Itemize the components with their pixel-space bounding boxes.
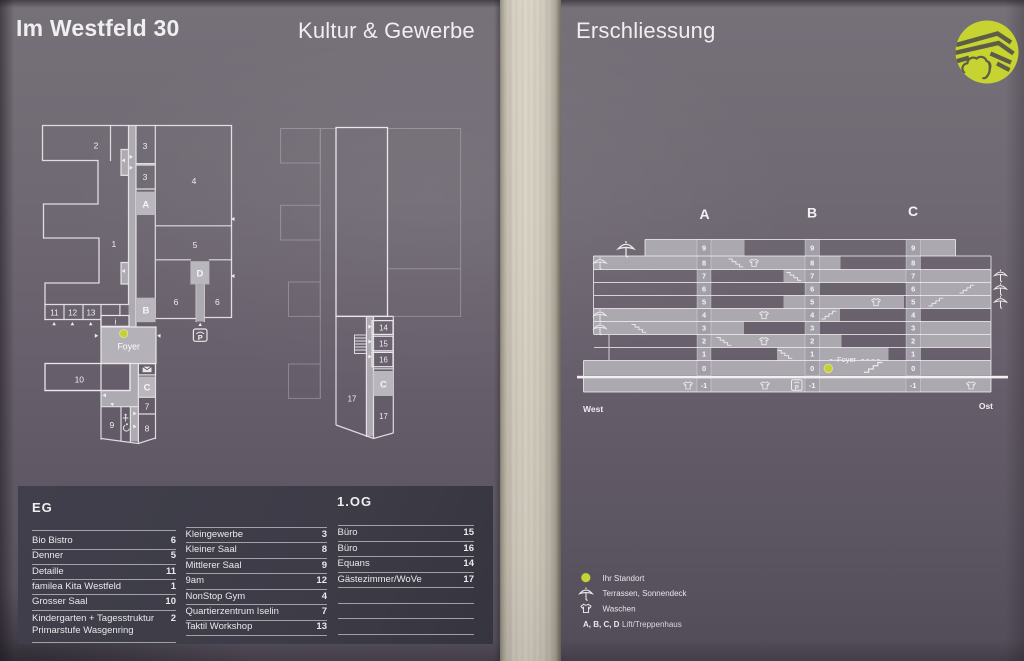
svg-text:9: 9 (911, 243, 915, 252)
svg-text:17: 17 (348, 395, 357, 404)
svg-text:4: 4 (192, 176, 197, 186)
svg-text:Foyer: Foyer (117, 342, 140, 352)
svg-text:16: 16 (379, 356, 388, 365)
svg-text:Ost: Ost (979, 401, 993, 411)
svg-text:1: 1 (702, 350, 706, 359)
svg-text:5: 5 (193, 240, 198, 250)
svg-text:Foyer: Foyer (837, 355, 857, 364)
svg-text:A, B, C, D: A, B, C, D (583, 620, 620, 629)
svg-text:9: 9 (110, 420, 115, 430)
svg-text:14: 14 (379, 324, 388, 333)
svg-text:1: 1 (911, 350, 915, 359)
svg-text:2: 2 (810, 337, 814, 346)
svg-text:Ihr Standort: Ihr Standort (603, 574, 646, 583)
svg-text:-1: -1 (701, 381, 708, 390)
svg-text:2: 2 (94, 141, 99, 151)
svg-text:B: B (807, 205, 817, 221)
svg-text:17: 17 (379, 412, 388, 421)
svg-text:6: 6 (215, 297, 220, 307)
svg-text:Waschen: Waschen (603, 605, 636, 614)
svg-text:C: C (144, 383, 151, 394)
svg-text:7: 7 (145, 402, 150, 412)
svg-text:3: 3 (143, 141, 148, 151)
svg-text:3: 3 (911, 324, 915, 333)
svg-text:6: 6 (810, 285, 814, 294)
svg-text:12: 12 (68, 309, 77, 318)
svg-text:0: 0 (702, 364, 706, 373)
svg-text:6: 6 (911, 285, 915, 294)
svg-text:-1: -1 (910, 381, 917, 390)
svg-text:B: B (142, 306, 149, 317)
svg-text:2: 2 (702, 337, 706, 346)
svg-text:5: 5 (810, 298, 814, 307)
svg-text:6: 6 (702, 285, 706, 294)
svg-text:5: 5 (911, 298, 915, 307)
svg-text:7: 7 (702, 272, 706, 281)
svg-text:West: West (583, 404, 603, 414)
svg-text:0: 0 (911, 364, 915, 373)
svg-text:8: 8 (810, 258, 814, 267)
svg-text:8: 8 (145, 424, 150, 434)
svg-text:3: 3 (702, 324, 706, 333)
svg-text:7: 7 (911, 272, 915, 281)
svg-text:P: P (198, 333, 203, 342)
svg-text:2: 2 (911, 337, 915, 346)
svg-text:1: 1 (810, 350, 814, 359)
svg-text:15: 15 (379, 340, 388, 349)
svg-text:0: 0 (810, 364, 814, 373)
svg-text:C: C (908, 203, 918, 219)
svg-text:i: i (115, 316, 117, 326)
svg-text:3: 3 (143, 172, 148, 182)
svg-text:A: A (142, 200, 149, 211)
svg-text:6: 6 (174, 297, 179, 307)
svg-text:Terrassen, Sonnendeck: Terrassen, Sonnendeck (603, 589, 688, 598)
svg-text:A: A (699, 206, 709, 222)
svg-text:9: 9 (702, 243, 706, 252)
svg-text:11: 11 (50, 309, 59, 318)
svg-text:C: C (380, 380, 387, 391)
svg-text:7: 7 (810, 272, 814, 281)
svg-text:1: 1 (112, 239, 117, 249)
svg-text:10: 10 (75, 375, 85, 385)
svg-text:Lift/Treppenhaus: Lift/Treppenhaus (622, 620, 682, 629)
svg-text:8: 8 (911, 258, 915, 267)
svg-text:P: P (795, 384, 799, 391)
svg-text:9: 9 (810, 243, 814, 252)
svg-text:3: 3 (810, 324, 814, 333)
svg-text:8: 8 (702, 258, 706, 267)
svg-text:D: D (196, 269, 203, 280)
svg-text:13: 13 (86, 309, 95, 318)
svg-text:5: 5 (702, 298, 706, 307)
svg-text:-1: -1 (809, 381, 816, 390)
